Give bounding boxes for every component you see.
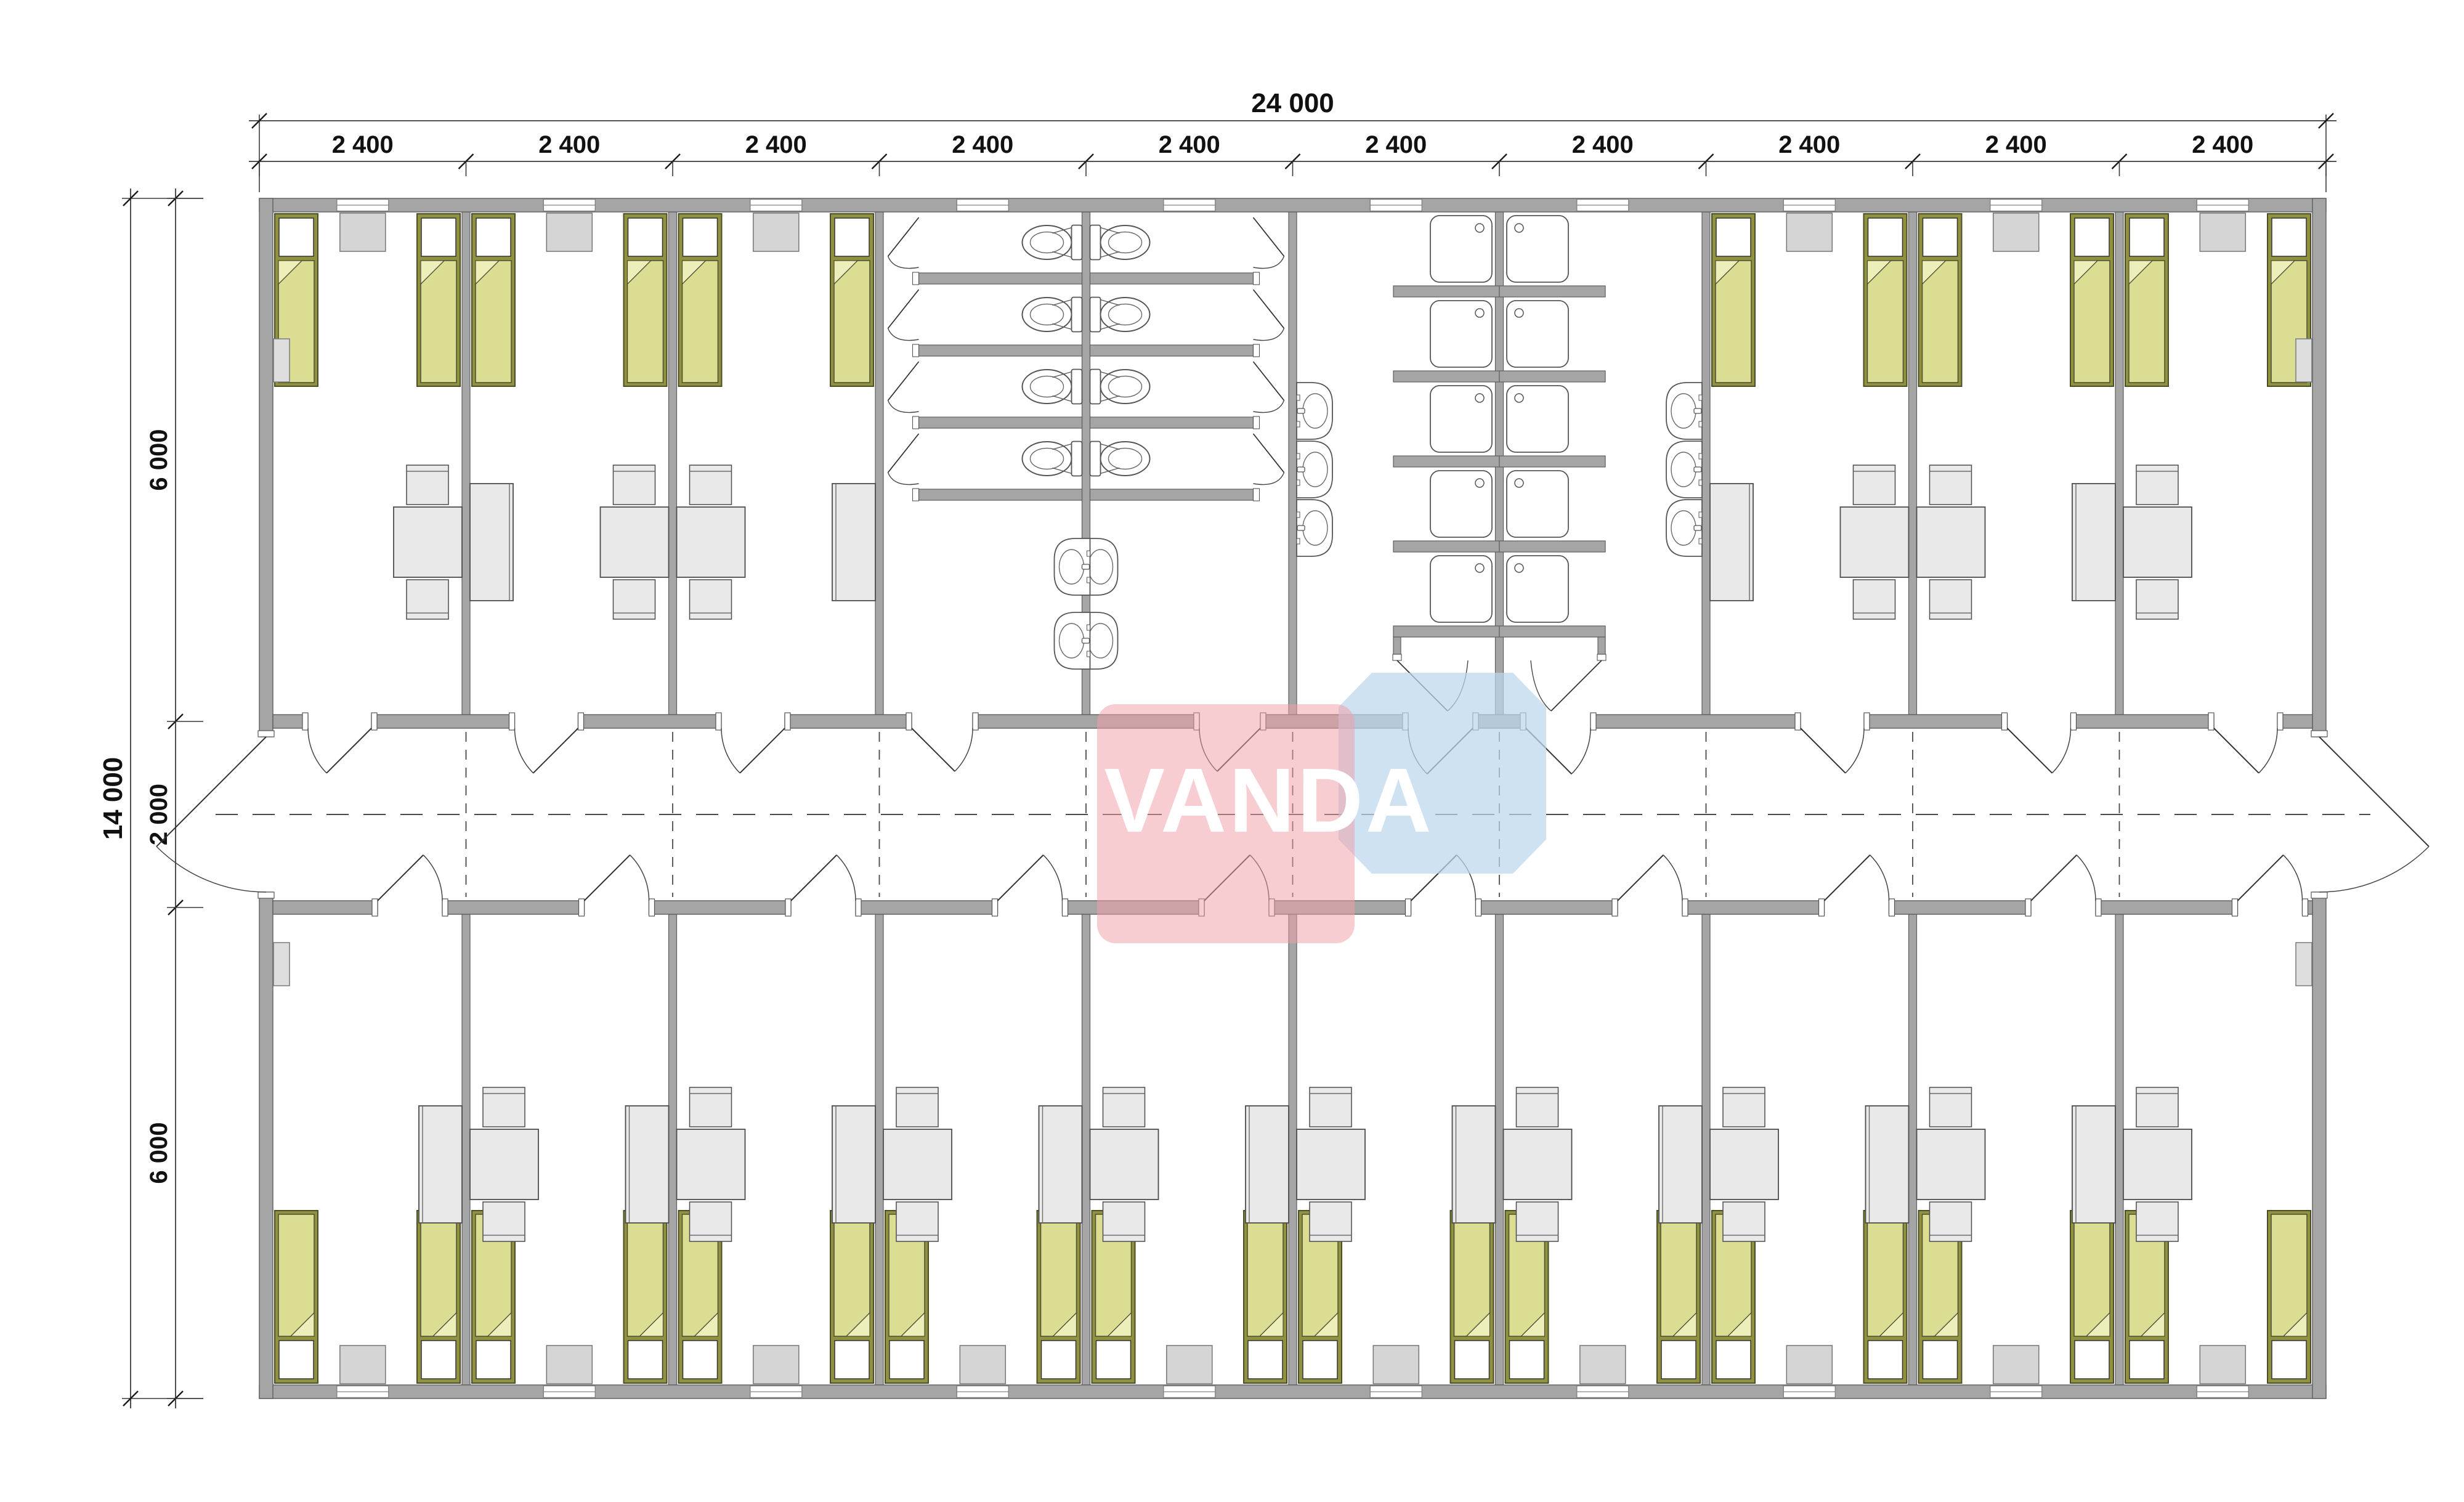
table-top	[883, 1129, 952, 1200]
dim-label-module: 2 400	[1159, 131, 1220, 158]
wardrobe-body	[1246, 1106, 1289, 1223]
bed-pillow	[1868, 218, 1903, 256]
wardrobe	[832, 1106, 875, 1223]
bedroom-module	[470, 213, 669, 619]
bed-pillow	[1868, 1341, 1903, 1379]
door-jamb	[1819, 899, 1825, 916]
sink-mount	[1699, 453, 1702, 459]
sink-mount	[1087, 625, 1090, 630]
bedroom-module	[1504, 1087, 1703, 1384]
corridor-wall-top	[578, 715, 722, 728]
bed	[1037, 1211, 1080, 1383]
nightstand	[1993, 213, 2039, 251]
table	[883, 1129, 952, 1200]
axis-lines	[216, 732, 2370, 897]
bed-pillow	[835, 1341, 869, 1379]
shower-partition	[1393, 541, 1499, 552]
table	[677, 507, 745, 577]
door-jamb	[2311, 892, 2327, 898]
door-jamb	[913, 272, 919, 285]
table	[1841, 507, 1909, 577]
bed-pillow	[2130, 218, 2164, 256]
sink-mount	[1297, 421, 1300, 427]
stall-door-leaf	[1254, 290, 1284, 328]
shower-drain-icon	[1515, 479, 1523, 487]
door-leaf	[2214, 728, 2259, 773]
dim-label-total-width: 24 000	[1251, 88, 1334, 118]
sink-mount	[1087, 577, 1090, 583]
shower-drain-icon	[1475, 224, 1484, 232]
bedroom-module	[274, 943, 462, 1384]
corridor-wall-top	[371, 715, 515, 728]
door-leaf	[2031, 855, 2077, 901]
sink-mount	[1297, 480, 1300, 485]
table	[1090, 1129, 1159, 1200]
corridor-wall-bottom	[649, 901, 792, 914]
wardrobe	[1866, 1106, 1909, 1223]
bedroom-module	[1917, 213, 2116, 619]
chair	[1310, 1202, 1352, 1241]
toilet-bowl	[1101, 370, 1150, 404]
bed-pillow	[1923, 1341, 1958, 1379]
door-jamb	[1473, 713, 1478, 730]
bedroom-module	[470, 1087, 669, 1384]
dim-label-section: 6 000	[145, 1122, 172, 1183]
bed	[1244, 1211, 1287, 1383]
bed	[472, 214, 515, 386]
sink	[1055, 538, 1090, 595]
toilet-tank	[1090, 298, 1101, 332]
wardrobe	[1246, 1106, 1289, 1223]
toilet-tank	[1090, 442, 1101, 476]
toilet	[1090, 298, 1150, 332]
bed	[417, 1211, 460, 1383]
bed	[1451, 1211, 1494, 1383]
chair	[1930, 1087, 1972, 1127]
heater	[274, 943, 290, 986]
table	[470, 1129, 538, 1200]
door-jamb	[2277, 713, 2283, 730]
partition-wall	[875, 212, 883, 715]
door-jamb	[2096, 899, 2101, 916]
bed-pillow	[835, 218, 869, 256]
bed-pillow	[2272, 218, 2306, 256]
sink-mount	[1699, 480, 1702, 485]
door-leaf	[1526, 728, 1571, 774]
dim-label-module: 2 400	[1985, 131, 2047, 158]
chair	[1517, 1202, 1558, 1241]
chair	[1310, 1087, 1352, 1127]
door-arc	[1457, 855, 1476, 901]
partition-wall	[875, 914, 883, 1385]
toilet-bowl	[1023, 298, 1072, 331]
stall-door-leaf	[888, 217, 919, 256]
door-jamb	[2002, 713, 2008, 730]
washroom-door-arc	[1448, 660, 1468, 711]
table-top	[470, 1129, 538, 1200]
wardrobe	[1039, 1106, 1082, 1223]
bed-pillow	[2130, 1341, 2164, 1379]
shower-stall	[1507, 386, 1568, 452]
sink	[1297, 383, 1332, 439]
chair	[2136, 580, 2178, 619]
bedroom-module	[2123, 943, 2312, 1384]
chair	[407, 580, 448, 619]
bed-pillow	[1716, 218, 1751, 256]
bed	[624, 214, 667, 386]
entrance-door-leaf	[156, 737, 266, 846]
nightstand	[1786, 1346, 1832, 1384]
partition-wall	[1082, 914, 1090, 1385]
shower-partition	[1499, 541, 1605, 552]
sink-mount	[1699, 395, 1702, 400]
sink-tap	[1297, 408, 1305, 413]
door-leaf	[1427, 728, 1473, 774]
stall-door-leaf	[888, 434, 919, 473]
bed-pillow	[1716, 1341, 1751, 1379]
door-arc	[2259, 728, 2277, 773]
door-jamb	[1612, 899, 1618, 916]
shower-stall	[1507, 301, 1568, 367]
corridor-wall-top	[1864, 715, 2008, 728]
stall-door-leaf	[888, 290, 919, 328]
table	[1297, 1129, 1365, 1200]
shower-partition	[1393, 626, 1499, 637]
stall-door-arc	[888, 256, 919, 269]
bed-pillow	[1248, 1341, 1283, 1379]
door-arc	[630, 855, 649, 901]
shower-stall	[1430, 301, 1492, 367]
shower-rooms	[1297, 216, 1702, 711]
door-leaf	[1204, 855, 1250, 901]
chair	[407, 465, 448, 505]
wardrobe-body	[2072, 484, 2115, 601]
sink-tap	[1694, 408, 1701, 413]
door-leaf	[1825, 855, 1870, 901]
door-arc	[1250, 855, 1269, 901]
bed	[2070, 214, 2113, 386]
chair	[2136, 465, 2178, 505]
shower-stall	[1507, 216, 1568, 282]
door-jamb	[1682, 899, 1688, 916]
door-jamb	[2303, 899, 2308, 916]
door-leaf	[998, 855, 1044, 901]
nightstand	[960, 1346, 1005, 1384]
sink	[1055, 612, 1090, 669]
sink-mount	[1297, 512, 1300, 518]
table-top	[677, 1129, 745, 1200]
floor-plan-canvas: 24 0002 4002 4002 4002 4002 4002 4002 40…	[0, 0, 2464, 1502]
shower-partition-stub	[1598, 637, 1605, 654]
wardrobe	[1710, 484, 1753, 601]
wardrobe	[2072, 484, 2115, 601]
stall-door-arc	[888, 473, 919, 485]
door-jamb	[371, 713, 377, 730]
shower-drain-icon	[1515, 394, 1523, 402]
table-top	[2123, 1129, 2192, 1200]
door-leaf	[533, 728, 578, 773]
bed-pillow	[683, 1341, 718, 1379]
stall-door-arc	[1254, 473, 1284, 485]
door-jamb	[992, 899, 998, 916]
partition-wall	[669, 914, 677, 1385]
door-jamb	[258, 892, 274, 898]
corridor-wall-bottom	[1476, 901, 1618, 914]
bed-pillow	[279, 218, 314, 256]
chair	[896, 1202, 938, 1241]
exterior-wall-right	[2312, 892, 2326, 1398]
nightstand	[1993, 1346, 2039, 1384]
toilet	[1090, 225, 1150, 260]
wardrobe	[470, 484, 513, 601]
chair	[2136, 1087, 2178, 1127]
stall-partition	[1090, 345, 1254, 356]
sink	[1666, 441, 1702, 498]
door-leaf	[1217, 728, 1260, 771]
sink-tap	[1694, 526, 1701, 530]
chair	[1517, 1087, 1558, 1127]
door-arc	[2077, 855, 2096, 901]
wardrobe-body	[2072, 1106, 2115, 1223]
wardrobe-body	[832, 484, 875, 601]
shower-drain-icon	[1475, 309, 1484, 317]
bed-pillow	[683, 218, 718, 256]
washroom-door-leaf	[1551, 660, 1602, 711]
sink-mount	[1087, 651, 1090, 657]
door-jamb	[1254, 272, 1260, 285]
door-jamb	[1476, 899, 1481, 916]
table-top	[2123, 507, 2192, 577]
stall-partition	[1090, 417, 1254, 428]
door-jamb	[1393, 654, 1401, 660]
door-jamb	[1795, 713, 1801, 730]
chair	[690, 1087, 732, 1127]
stall-partition	[919, 273, 1082, 284]
chair	[614, 580, 655, 619]
table	[1917, 1129, 1985, 1200]
door-leaf	[740, 728, 785, 773]
dim-label-module: 2 400	[1365, 131, 1427, 158]
stall-partition	[1090, 489, 1254, 500]
door-arc	[721, 728, 740, 773]
shower-partition-stub	[1393, 637, 1401, 654]
partition-wall	[462, 914, 470, 1385]
bed	[417, 214, 460, 386]
bed	[1712, 214, 1755, 386]
dim-label-section: 6 000	[145, 429, 172, 490]
bedroom-module	[1917, 1087, 2116, 1384]
corridor-wall-top	[1473, 715, 1526, 728]
bedroom-module	[883, 1087, 1082, 1384]
stall-partition	[919, 345, 1082, 356]
table-top	[1504, 1129, 1572, 1200]
dim-label-module: 2 400	[1572, 131, 1634, 158]
toilet-bowl	[1101, 225, 1150, 259]
table-top	[1917, 1129, 1985, 1200]
door-leaf	[1618, 855, 1663, 901]
door-jamb	[579, 899, 585, 916]
corridor-wall-top	[1591, 715, 1801, 728]
sink	[1666, 383, 1702, 439]
floor-plan-svg: 24 0002 4002 4002 4002 4002 4002 4002 40…	[0, 0, 2464, 1502]
nightstand	[1373, 1346, 1419, 1384]
heater	[2296, 339, 2312, 382]
bed-pillow	[1510, 1341, 1544, 1379]
partition-wall	[1909, 914, 1917, 1385]
shower-stall	[1430, 216, 1492, 282]
wardrobe-body	[626, 1106, 669, 1223]
chair	[690, 580, 732, 619]
wardrobe-body	[1710, 484, 1753, 601]
shower-stall	[1507, 471, 1568, 537]
nightstand	[1580, 1346, 1626, 1384]
door-jamb	[2311, 731, 2327, 737]
door-leaf	[2238, 855, 2284, 901]
door-arc	[2052, 728, 2070, 773]
door-jamb	[1591, 713, 1596, 730]
wardrobe-body	[1866, 1106, 1909, 1223]
corridor-wall-bottom	[442, 901, 585, 914]
door-leaf	[1801, 728, 1846, 773]
wardrobe	[626, 1106, 669, 1223]
bedroom-module	[1090, 1087, 1289, 1384]
toilet-bowl	[1023, 225, 1072, 259]
table-top	[677, 507, 745, 577]
bed	[1919, 214, 1962, 386]
door-leaf	[2008, 728, 2053, 773]
toilet	[1023, 225, 1082, 260]
door-jamb	[509, 713, 515, 730]
door-arc	[515, 728, 533, 773]
door-jamb	[258, 731, 274, 737]
stall-door-arc	[888, 400, 919, 413]
shower-drain-icon	[1515, 564, 1523, 572]
stall-door-arc	[888, 328, 919, 341]
toilet-bowl	[1023, 370, 1072, 404]
bedroom-module	[677, 213, 876, 619]
door-jamb	[913, 416, 919, 429]
shower-stall	[1507, 556, 1568, 622]
stall-door-arc	[1254, 256, 1284, 269]
toilet	[1090, 442, 1150, 476]
nightstand	[340, 1346, 386, 1384]
toilet-tank	[1090, 370, 1101, 404]
chair	[1930, 465, 1972, 505]
dim-label-module: 2 400	[2192, 131, 2253, 158]
corridor-wall-bottom	[1269, 901, 1411, 914]
sink-mount	[1297, 453, 1300, 459]
chair	[1723, 1087, 1765, 1127]
bed-pillow	[421, 1341, 456, 1379]
dim-label-module: 2 400	[538, 131, 600, 158]
door-arc	[308, 728, 326, 773]
bed-pillow	[476, 218, 511, 256]
shower-drain-icon	[1475, 564, 1484, 572]
door-jamb	[1254, 416, 1260, 429]
dim-label-module: 2 400	[332, 131, 394, 158]
sink-mount	[1699, 538, 1702, 544]
wardrobe	[2072, 1106, 2115, 1223]
sink-mount	[1087, 551, 1090, 556]
partition-wall	[1289, 212, 1297, 715]
table-top	[1710, 1129, 1778, 1200]
shower-stall	[1430, 556, 1492, 622]
wardrobe-body	[470, 484, 513, 601]
dim-label-total-height: 14 000	[98, 757, 128, 840]
door-jamb	[578, 713, 584, 730]
stall-door-arc	[1254, 400, 1284, 413]
door-jamb	[913, 489, 919, 501]
bed-pillow	[1661, 1341, 1696, 1379]
door-leaf	[378, 855, 423, 901]
shower-partition	[1393, 371, 1499, 382]
shower-partition	[1499, 286, 1605, 297]
door-jamb	[1063, 899, 1068, 916]
bed-pillow	[1042, 1341, 1076, 1379]
bed	[830, 214, 873, 386]
partition-wall	[1496, 914, 1504, 1385]
bed-pillow	[2075, 218, 2109, 256]
bed-pillow	[628, 1341, 663, 1379]
table	[1504, 1129, 1572, 1200]
table-top	[394, 507, 462, 577]
exterior-wall-right	[2312, 198, 2326, 737]
bed-pillow	[279, 1341, 314, 1379]
bed	[2267, 1211, 2311, 1383]
nightstand	[2200, 1346, 2245, 1384]
chair	[1854, 465, 1895, 505]
door-jamb	[913, 344, 919, 357]
door-arc	[1846, 728, 1864, 773]
bed	[624, 1211, 667, 1383]
door-arc	[1571, 728, 1591, 774]
door-jamb	[1889, 899, 1895, 916]
exterior-wall-left	[259, 198, 273, 737]
door-jamb	[785, 899, 791, 916]
bedroom-module	[274, 213, 462, 619]
toilet	[1023, 370, 1082, 404]
entrance-door-leaf	[2319, 737, 2429, 846]
stall-door-leaf	[1254, 434, 1284, 473]
partition-wall	[1702, 914, 1710, 1385]
chair	[483, 1202, 525, 1241]
sink-mount	[1699, 421, 1702, 427]
door-jamb	[1864, 713, 1870, 730]
door-jamb	[2025, 899, 2031, 916]
shower-partition	[1393, 286, 1499, 297]
bed-pillow	[476, 1341, 511, 1379]
stall-door-leaf	[888, 362, 919, 400]
partition-wall	[669, 212, 677, 715]
bed	[830, 1211, 873, 1383]
chair	[896, 1087, 938, 1127]
toilet	[1023, 298, 1082, 332]
door-arc	[2284, 855, 2303, 901]
toilet-tank	[1072, 370, 1082, 404]
bed-pillow	[2272, 1341, 2306, 1379]
door-jamb	[1406, 899, 1411, 916]
bed-pillow	[2075, 1341, 2109, 1379]
bed	[679, 214, 722, 386]
partition-wall	[1909, 212, 1917, 715]
bed-pillow	[1303, 1341, 1337, 1379]
exterior-wall-left	[259, 892, 273, 1398]
table-top	[1090, 1129, 1159, 1200]
door-jamb	[1260, 713, 1266, 730]
shower-drain-icon	[1515, 309, 1523, 317]
door-arc	[837, 855, 856, 901]
wardrobe	[1659, 1106, 1702, 1223]
